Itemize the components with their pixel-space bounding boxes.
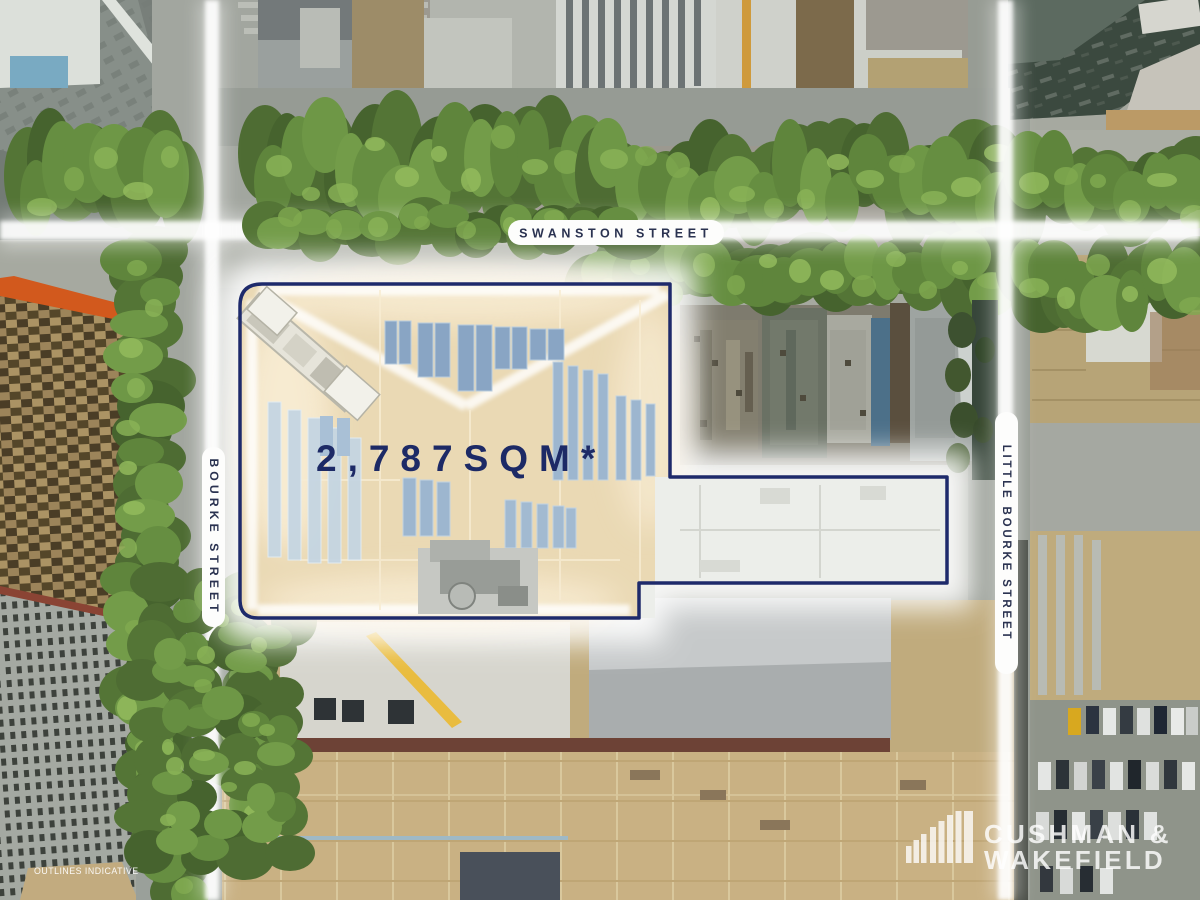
svg-text:OUTLINES INDICATIVE: OUTLINES INDICATIVE xyxy=(34,866,139,876)
svg-text:WAKEFIELD: WAKEFIELD xyxy=(984,845,1166,875)
svg-text:2,787SQM*: 2,787SQM* xyxy=(316,438,606,479)
svg-text:SWANSTON STREET: SWANSTON STREET xyxy=(519,227,713,241)
svg-text:BOURKE STREET: BOURKE STREET xyxy=(207,458,221,615)
svg-text:LITTLE BOURKE STREET: LITTLE BOURKE STREET xyxy=(1000,445,1012,642)
